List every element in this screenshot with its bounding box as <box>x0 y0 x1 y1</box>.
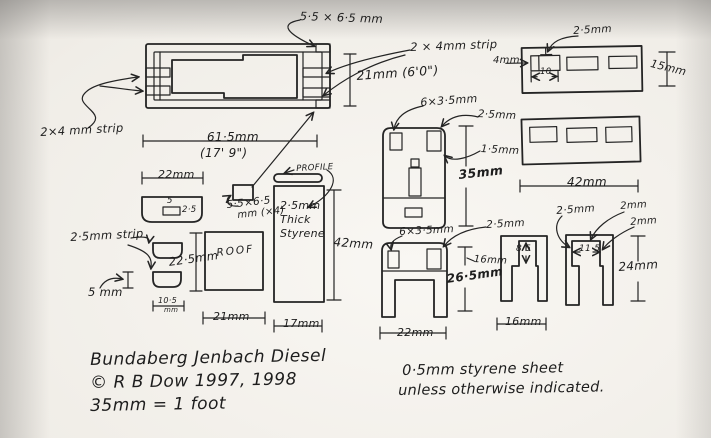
profile-part <box>274 170 341 332</box>
label-roofend-block-side: 2·5 <box>182 206 196 215</box>
label-u2-corner: 2·5mm <box>556 203 595 216</box>
label-u1-width: 16mm <box>505 316 542 327</box>
label-profile-height: 42mm <box>333 236 374 251</box>
label-roofend-width: 22mm <box>158 169 195 180</box>
label-panel-width: 42mm <box>567 176 607 188</box>
label-grille-window-width: 10 <box>540 68 551 77</box>
label-roof-small-width-unit: mm <box>164 307 178 314</box>
label-chassis-length: 61·5mm <box>207 131 259 143</box>
label-u2-wall-top: 2mm <box>620 200 647 212</box>
label-roof-small-width: 10·5 <box>158 297 177 305</box>
label-profile-thick1: 2·5mm <box>280 200 320 211</box>
label-u2-notch: 11·5 <box>579 245 600 254</box>
label-cabend-window: 6×3·5mm <box>399 224 454 237</box>
label-u1-notch: 8·5 <box>516 245 531 254</box>
title-line1: Bundaberg Jenbach Diesel <box>90 348 326 369</box>
label-u2-height: 24mm <box>618 258 659 273</box>
cab-end-piece <box>380 227 486 339</box>
grille-panel <box>506 46 643 93</box>
chassis-leaders <box>82 20 410 206</box>
label-profile-thick3: Styrene <box>280 228 325 239</box>
label-profile-thick2: Thick <box>280 214 311 225</box>
label-chassis-length-ft: (17' 9") <box>200 147 247 159</box>
label-cabside-edge: 1·5mm <box>480 144 519 157</box>
note-line2: unless otherwise indicated. <box>398 380 605 398</box>
window-panel <box>521 116 640 164</box>
label-five-mm: 5 mm <box>88 287 123 299</box>
label-roofend-block-top: 5 <box>167 197 173 206</box>
label-cabend-width: 22mm <box>397 327 434 338</box>
label-cabend-corner: 2·5mm <box>486 218 525 231</box>
note-line1: 0·5mm styrene sheet <box>402 361 564 378</box>
label-profile-tag: PROFILE <box>296 163 334 173</box>
label-pad-size: 5·5 × 6·5 mm <box>300 11 384 25</box>
chassis-plan <box>146 44 330 108</box>
label-u2-wall-side: 2mm <box>630 216 657 228</box>
scanned-drawing-sheet: 5·5 × 6·5 mm 2 × 4mm strip 21mm (6'0") 2… <box>0 0 711 438</box>
title-line2: © R B Dow 1997, 1998 <box>90 371 297 392</box>
label-strip-right: 2 × 4mm strip <box>410 39 498 54</box>
label-cabside-corner: 2·5mm <box>477 109 516 122</box>
label-grille-corner: 2·5mm <box>573 24 612 37</box>
label-roof-width: 21mm <box>213 311 250 322</box>
label-profile-width: 17mm <box>283 318 320 329</box>
label-grille-left: 4mm <box>493 56 520 66</box>
title-line3: 35mm = 1 foot <box>90 396 226 415</box>
